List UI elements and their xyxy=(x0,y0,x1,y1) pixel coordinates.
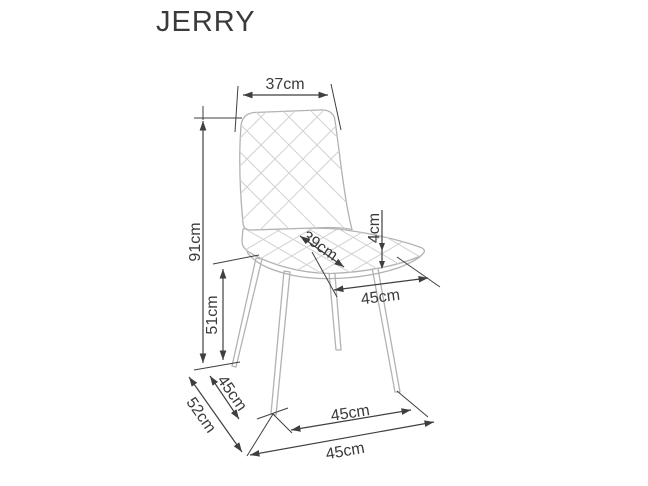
dimension-label-cushion-thickness: 4cm xyxy=(366,213,383,243)
ext-seat-height xyxy=(213,255,259,264)
dimension-label-seat-width: 45cm xyxy=(360,287,401,309)
dimension-label-total-depth: 52cm xyxy=(183,395,219,437)
chair-backrest xyxy=(240,110,352,230)
chair-leg-front-right xyxy=(371,262,400,392)
ext-backrest-left xyxy=(235,86,238,132)
dimension-label-seat-height: 51cm xyxy=(204,295,221,334)
ext-right-foot xyxy=(397,391,428,417)
chair-leg-rear-right xyxy=(328,261,341,350)
chair-dimension-drawing: 37cm 91cm 51cm 39cm 4cm 45cm 45cm 52cm 4… xyxy=(0,0,648,486)
dimension-label-total-height: 91cm xyxy=(187,222,204,261)
ext-seatwidth-right xyxy=(397,257,440,287)
ext-outer-left xyxy=(247,414,273,456)
dimension-label-side-leg-span: 45cm xyxy=(214,373,250,415)
chair-illustration xyxy=(100,100,470,415)
chair-leg-front-left xyxy=(271,271,290,415)
dimension-label-backrest-width: 37cm xyxy=(265,76,304,93)
dimension-label-base-width: 45cm xyxy=(324,440,365,464)
product-dimension-diagram: JERRY xyxy=(0,0,648,486)
chair-leg-rear-left xyxy=(232,258,262,367)
dimension-label-front-leg-span: 45cm xyxy=(330,402,371,425)
ext-inner-left xyxy=(273,414,292,433)
